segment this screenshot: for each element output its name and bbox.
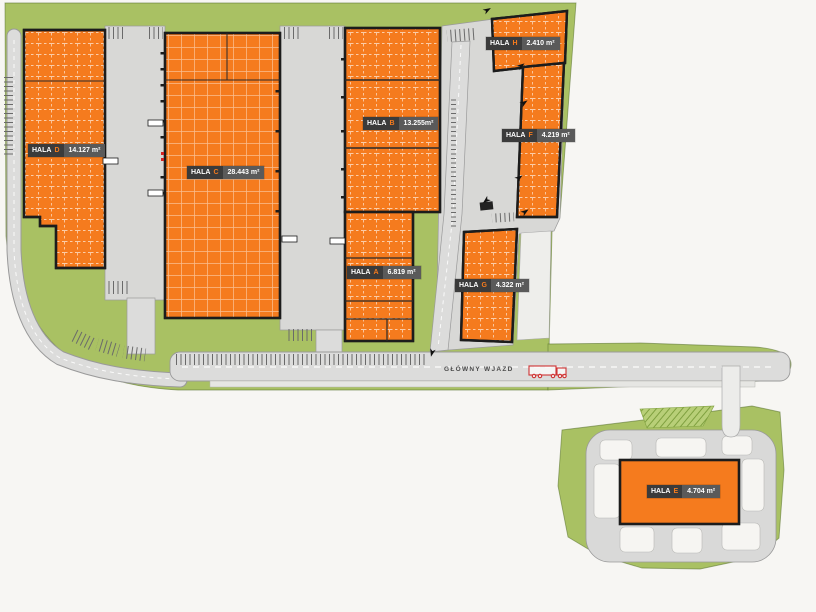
hala-d-letter: D [54,147,59,154]
hala-h-letter: H [512,40,517,47]
hala-e-area: 4.704 m² [682,485,720,498]
site-plan-drawing [0,0,816,612]
hala-g-letter: G [481,282,486,289]
hala-g-area: 4.322 m² [491,279,529,292]
hala-e-label[interactable]: HALAE 4.704 m² [647,485,720,498]
hala-d-label[interactable]: HALAD 14.127 m² [28,144,105,157]
hala-b-letter: B [389,120,394,127]
hala-e-access-road [722,366,740,437]
hala-f-letter: F [528,132,532,139]
hala-b-label[interactable]: HALAB 13.255m² [363,117,438,130]
hala-g-label[interactable]: HALAG 4.322 m² [455,279,529,292]
hala-c-letter: C [213,169,218,176]
hala-f-name: HALA [506,132,525,139]
site-plan: HALAD 14.127 m² HALAC 28.443 m² HALAB 13… [0,0,816,612]
landscape-hatch [640,406,714,428]
hala-c-label[interactable]: HALAC 28.443 m² [187,166,264,179]
hala-b-name: HALA [367,120,386,127]
hala-g-name: HALA [459,282,478,289]
hala-e-name: HALA [651,488,670,495]
hala-d-name: HALA [32,147,51,154]
hala-c-name: HALA [191,169,210,176]
hala-a-area: 6.819 m² [383,266,421,279]
hala-d-area: 14.127 m² [64,144,106,157]
hala-a-label[interactable]: HALAA 6.819 m² [347,266,421,279]
hala-c-area: 28.443 m² [223,166,265,179]
hala-f-label[interactable]: HALAF 4.219 m² [502,129,575,142]
hala-a-letter: A [373,269,378,276]
hala-h-name: HALA [490,40,509,47]
main-entrance-label: GŁÓWNY WJAZD [444,366,514,373]
hala-h-area: 2.410 m² [522,37,560,50]
hala-f-area: 4.219 m² [537,129,575,142]
hala-h-label[interactable]: HALAH 2.410 m² [486,37,560,50]
hala-b-area: 13.255m² [399,117,439,130]
hala-a-name: HALA [351,269,370,276]
hala-e-letter: E [673,488,678,495]
